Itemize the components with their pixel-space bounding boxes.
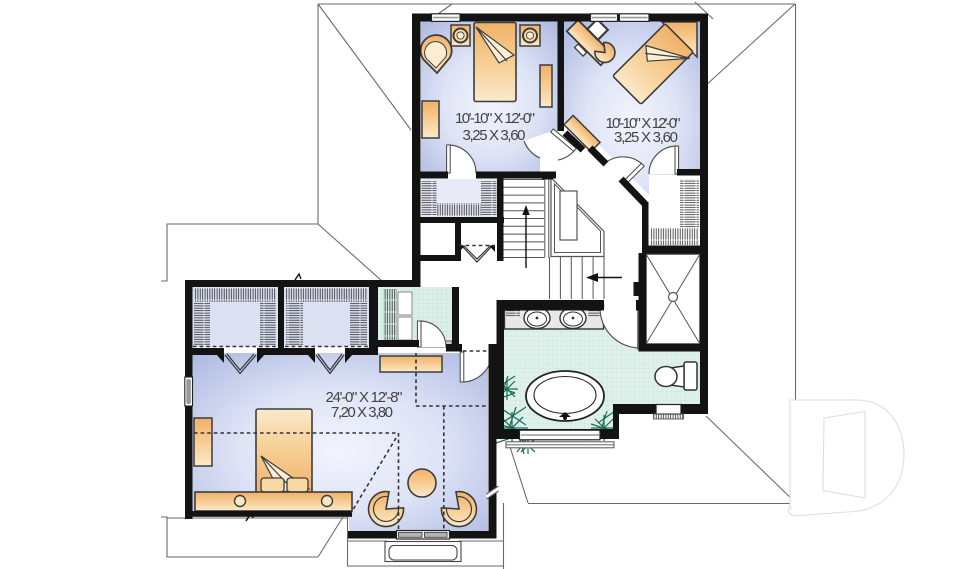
svg-text:3,25 X 3,60: 3,25 X 3,60 [614, 129, 678, 146]
svg-text:7,20 X 3,80: 7,20 X 3,80 [331, 404, 393, 421]
svg-text:10'-10" X 12'-0": 10'-10" X 12'-0" [455, 110, 535, 127]
svg-text:3,25 X 3,60: 3,25 X 3,60 [463, 127, 526, 144]
